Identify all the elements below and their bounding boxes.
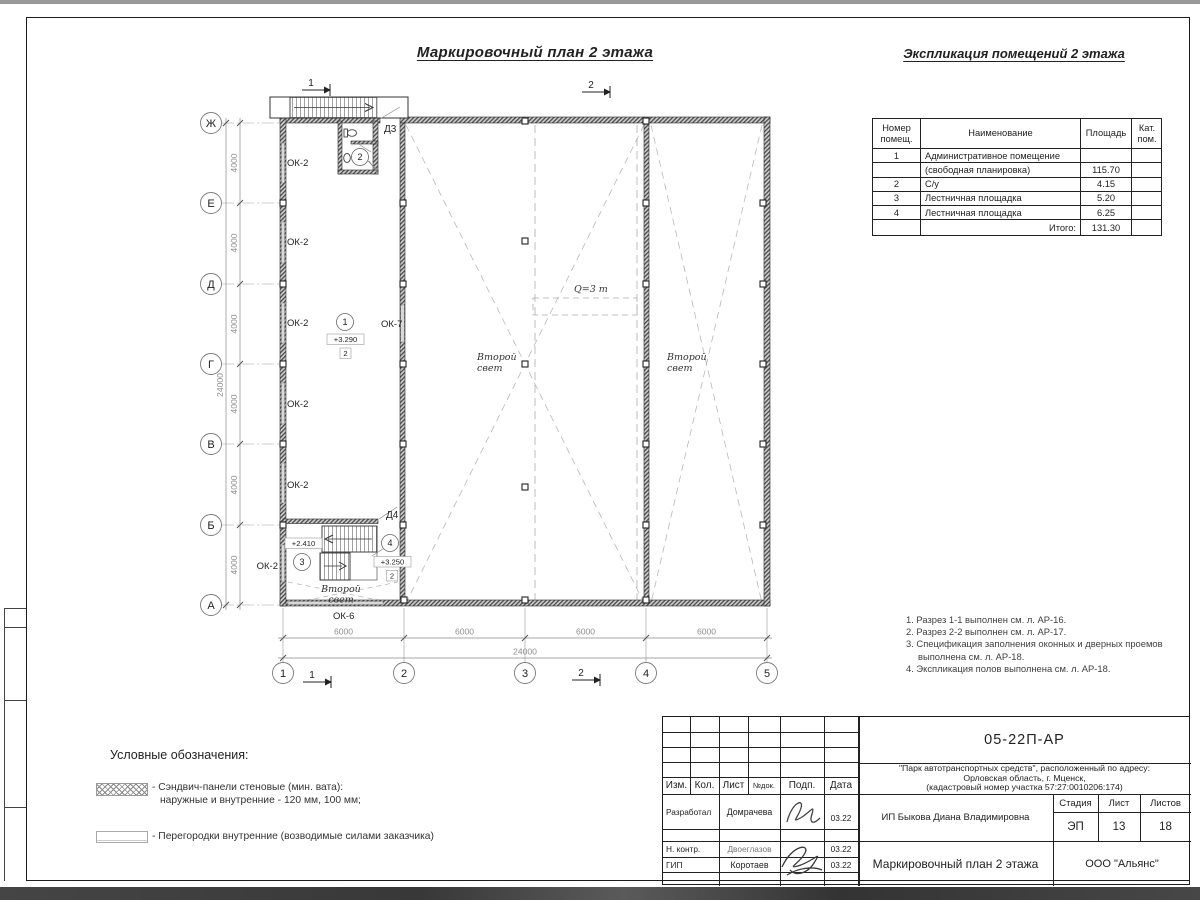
axis-label: 1 [280, 668, 286, 680]
col-ndok: №док. [748, 777, 780, 794]
exp-cell [1132, 192, 1162, 206]
window-label-ok2: ОК-2 [287, 158, 308, 169]
exp-cell [1132, 163, 1162, 177]
col-list: Лист [719, 777, 748, 794]
note-line: 3. Спецификация заполнения оконных и две… [906, 638, 1198, 662]
dim-24000: 24000 [513, 647, 537, 657]
legend-item-line: - Сэндвич-панели стеновые (мин. вата): [152, 782, 412, 795]
exp-cell: 4.15 [1081, 178, 1132, 192]
window-label-ok2: ОК-2 [287, 480, 308, 491]
stage-label: Стадия [1053, 794, 1098, 812]
window-label-ok2: ОК-2 [257, 561, 278, 572]
col-podp: Подп. [780, 777, 824, 794]
name-gip: Коротаев [720, 857, 779, 872]
window-label-ok2: ОК-2 [287, 237, 308, 248]
axis-label: 4 [643, 668, 649, 680]
legend-item-sandwich: - Сэндвич-панели стеновые (мин. вата): н… [152, 782, 412, 808]
dim-6000: 6000 [455, 627, 474, 637]
note-line: 2. Разрез 2-2 выполнен см. л. АР-17. [906, 626, 1198, 638]
axis-label: 5 [764, 668, 770, 680]
window-label-ok7: ОК-7 [381, 319, 402, 330]
note-line: 1. Разрез 1-1 выполнен см. л. АР-16. [906, 614, 1198, 626]
drawing-notes: 1. Разрез 1-1 выполнен см. л. АР-16. 2. … [906, 614, 1198, 675]
date-developer: 03.22 [824, 800, 858, 835]
door-swings [357, 107, 400, 556]
exp-cell: Лестничная площадка [921, 206, 1081, 220]
exp-cell [1081, 149, 1132, 163]
axis-label: Г [208, 359, 214, 371]
elevation-value: +2.410 [292, 539, 315, 548]
sheets-label: Листов [1140, 794, 1191, 812]
exp-col-cat: Кат. пом. [1132, 119, 1162, 149]
exp-cell [873, 163, 921, 177]
exp-cell: Административное помещение [921, 149, 1081, 163]
name-norm-control: Двоеглазов [720, 841, 779, 857]
titleblock-line [663, 732, 858, 733]
dim-6000: 6000 [697, 627, 716, 637]
dim-4000: 4000 [229, 233, 239, 252]
name-developer: Домрачева [720, 794, 779, 829]
exp-total-spacer [873, 220, 921, 234]
exp-col-num: Номер помещ. [873, 119, 921, 149]
window-label-ok2: ОК-2 [287, 318, 308, 329]
exp-cell: 1 [873, 149, 921, 163]
exp-cell: С/у [921, 178, 1081, 192]
titleblock-line [663, 747, 858, 748]
role-gip: ГИП [666, 857, 719, 872]
crane-capacity-label: Q=3 т [574, 284, 608, 295]
room-number: 3 [299, 557, 304, 567]
axis-label: 3 [522, 668, 528, 680]
col-data: Дата [824, 777, 858, 794]
exp-cell: 5.20 [1081, 192, 1132, 206]
axis-label: Д [207, 279, 215, 291]
axis-label: Е [207, 198, 214, 210]
legend-item-partition: - Перегородки внутренние (возводимые сил… [152, 831, 482, 844]
level-tag: 2 [390, 572, 394, 581]
exp-cell [1132, 149, 1162, 163]
second-light-label: Второй [666, 352, 707, 363]
crane-rails [533, 125, 637, 603]
room-number: 1 [342, 317, 347, 327]
dim-4000: 4000 [229, 153, 239, 172]
axis-label: А [207, 600, 215, 612]
exp-col-area: Площадь [1081, 119, 1132, 149]
axis-label: В [207, 439, 214, 451]
stage-value: ЭП [1053, 812, 1098, 841]
exp-cell: 2 [873, 178, 921, 192]
legend-swatch-sandwich-panel [96, 783, 148, 796]
signature-developer [782, 796, 824, 830]
door-label-d4: Д4 [386, 510, 399, 521]
room-number: 4 [387, 538, 392, 548]
dim-6000: 6000 [576, 627, 595, 637]
axis-label: Ж [206, 118, 216, 130]
dim-24000: 24000 [215, 373, 225, 397]
note-line: 4. Экспликация полов выполнена см. л. АР… [906, 663, 1198, 675]
titleblock-line [663, 872, 858, 873]
exp-cell: (свободная планировка) [921, 163, 1081, 177]
axis-label: Б [207, 520, 214, 532]
second-light-label: свет [328, 595, 353, 606]
exp-col-name: Наименование [921, 119, 1081, 149]
exp-total-label: Итого: [921, 220, 1081, 234]
role-norm-control: Н. контр. [666, 841, 719, 857]
exp-total-cat [1132, 220, 1162, 234]
exp-total-value: 131.30 [1081, 220, 1132, 234]
dim-4000: 4000 [229, 555, 239, 574]
col-kol: Кол. [690, 777, 719, 794]
sheets-total: 18 [1140, 812, 1191, 841]
exp-cell: Лестничная площадка [921, 192, 1081, 206]
dimension-lines [226, 118, 772, 658]
window-label-ok2: ОК-2 [287, 399, 308, 410]
exp-cell [1132, 178, 1162, 192]
legend-title: Условные обозначения: [110, 748, 249, 762]
titleblock-line [663, 762, 858, 763]
level-tag: 2 [343, 349, 347, 358]
room-number-bubbles: 1 2 3 4 [294, 149, 399, 571]
client-name: ИП Быкова Диана Владимировна [858, 794, 1053, 841]
section-mark-1: 1 [309, 670, 315, 681]
explication-table: Номер помещ. Наименование Площадь Кат. п… [872, 118, 1162, 236]
col-izm: Изм. [663, 777, 690, 794]
legend-item-line: наружные и внутренние - 120 мм, 100 мм; [152, 795, 412, 808]
dimension-ticks [223, 120, 770, 661]
section-mark-2: 2 [588, 80, 594, 91]
dim-6000: 6000 [334, 627, 353, 637]
interior-stair [320, 526, 377, 580]
organization-name: ООО "Альянс" [1053, 841, 1191, 886]
second-light-label: Второй [476, 352, 517, 363]
date-norm-control: 03.22 [824, 841, 858, 857]
exp-cell: 115.70 [1081, 163, 1132, 177]
axis-label: 2 [401, 668, 407, 680]
exp-cell: 6.25 [1081, 206, 1132, 220]
door-label-d3: Д3 [384, 124, 397, 135]
sheet-number: 13 [1098, 812, 1140, 841]
dim-4000: 4000 [229, 475, 239, 494]
exp-cell: 3 [873, 192, 921, 206]
window-label-ok6: ОК-6 [333, 611, 354, 622]
dim-4000: 4000 [229, 314, 239, 333]
section-mark-1: 1 [308, 78, 314, 89]
elevation-value: +3.250 [381, 558, 404, 567]
dim-4000: 4000 [229, 394, 239, 413]
section-mark-2: 2 [578, 668, 584, 679]
project-description: "Парк автотранспортных средств", располо… [858, 763, 1191, 794]
sheet-label: Лист [1098, 794, 1140, 812]
axis-lines [222, 123, 767, 663]
axis-bubbles: Ж Е Д Г В Б А 1 2 3 4 5 [201, 113, 778, 684]
date-gip: 03.22 [824, 857, 858, 872]
exp-cell: 4 [873, 206, 921, 220]
document-code: 05-22П-АР [858, 717, 1191, 763]
second-light-label: свет [477, 363, 502, 374]
drawing-sheet: Маркировочный план 2 этажа Экспликация п… [0, 0, 1200, 900]
elevation-value: +3.290 [334, 335, 357, 344]
sheet-title: Маркировочный план 2 этажа [858, 841, 1053, 886]
legend-swatch-partition [96, 831, 148, 843]
second-light-label: свет [667, 363, 692, 374]
exp-cell [1132, 206, 1162, 220]
title-block: Изм. Кол. Лист №док. Подп. Дата Разработ… [662, 716, 1190, 885]
signature-gip [778, 839, 826, 883]
project-line: (кадастровый номер участка 57:27:0010206… [858, 783, 1191, 793]
room-number: 2 [357, 152, 362, 162]
second-light-label: Второй [320, 584, 361, 595]
role-developer: Разработал [666, 794, 719, 829]
